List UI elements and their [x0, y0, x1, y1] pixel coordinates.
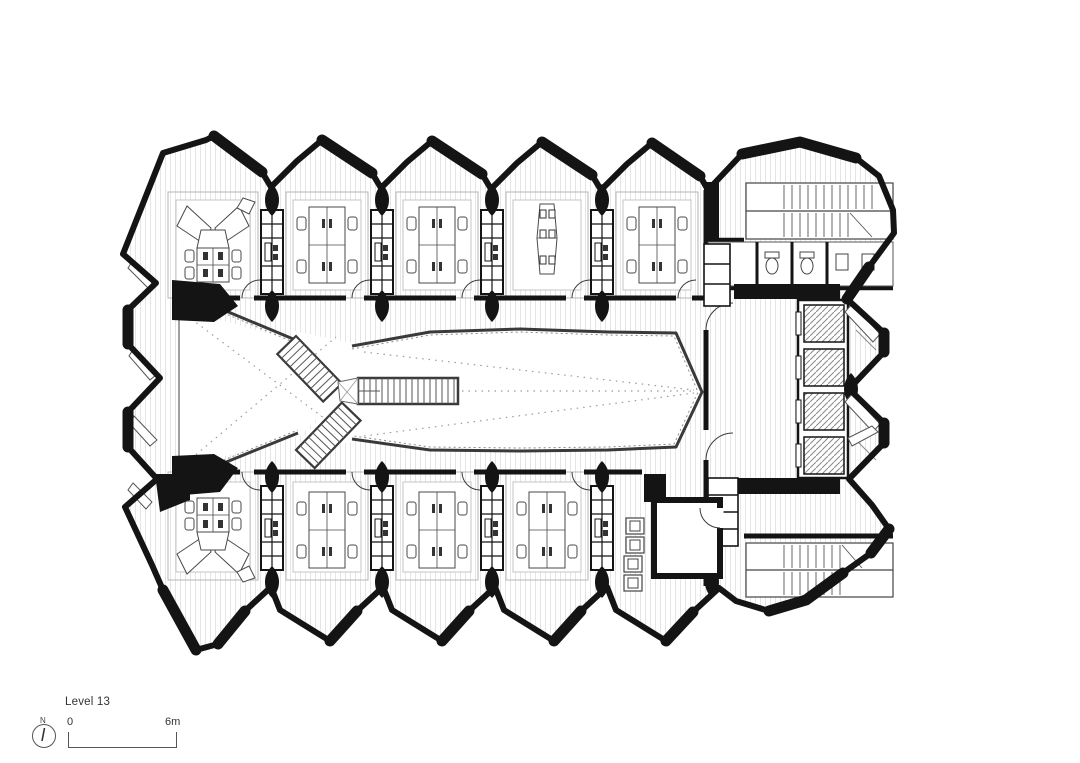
scale-bar: 0 6m: [65, 716, 185, 752]
storage-wall: [591, 210, 613, 294]
north-needle-icon: [32, 724, 54, 746]
scale-bracket: [68, 732, 177, 748]
north-arrow: N: [32, 720, 58, 746]
storage-wall: [591, 486, 613, 570]
storage-wall: [481, 210, 503, 294]
core-stair-upper: [746, 183, 893, 239]
meeting-table: [537, 204, 557, 274]
title-block: Level 13 N 0 6m: [28, 692, 248, 758]
storage-wall: [261, 486, 283, 570]
scale-end-label: 6m: [165, 716, 180, 728]
storage-wall: [371, 210, 393, 294]
floor-plan-drawing: [0, 0, 1080, 763]
storage-wall: [371, 486, 393, 570]
floor-label: Level 13: [65, 696, 110, 708]
scale-start-label: 0: [67, 716, 73, 728]
storage-wall: [261, 210, 283, 294]
stair-landing: [338, 378, 358, 404]
stair-run-long: [358, 378, 458, 404]
floor-plan-sheet: [0, 0, 1080, 763]
storage-wall: [481, 486, 503, 570]
